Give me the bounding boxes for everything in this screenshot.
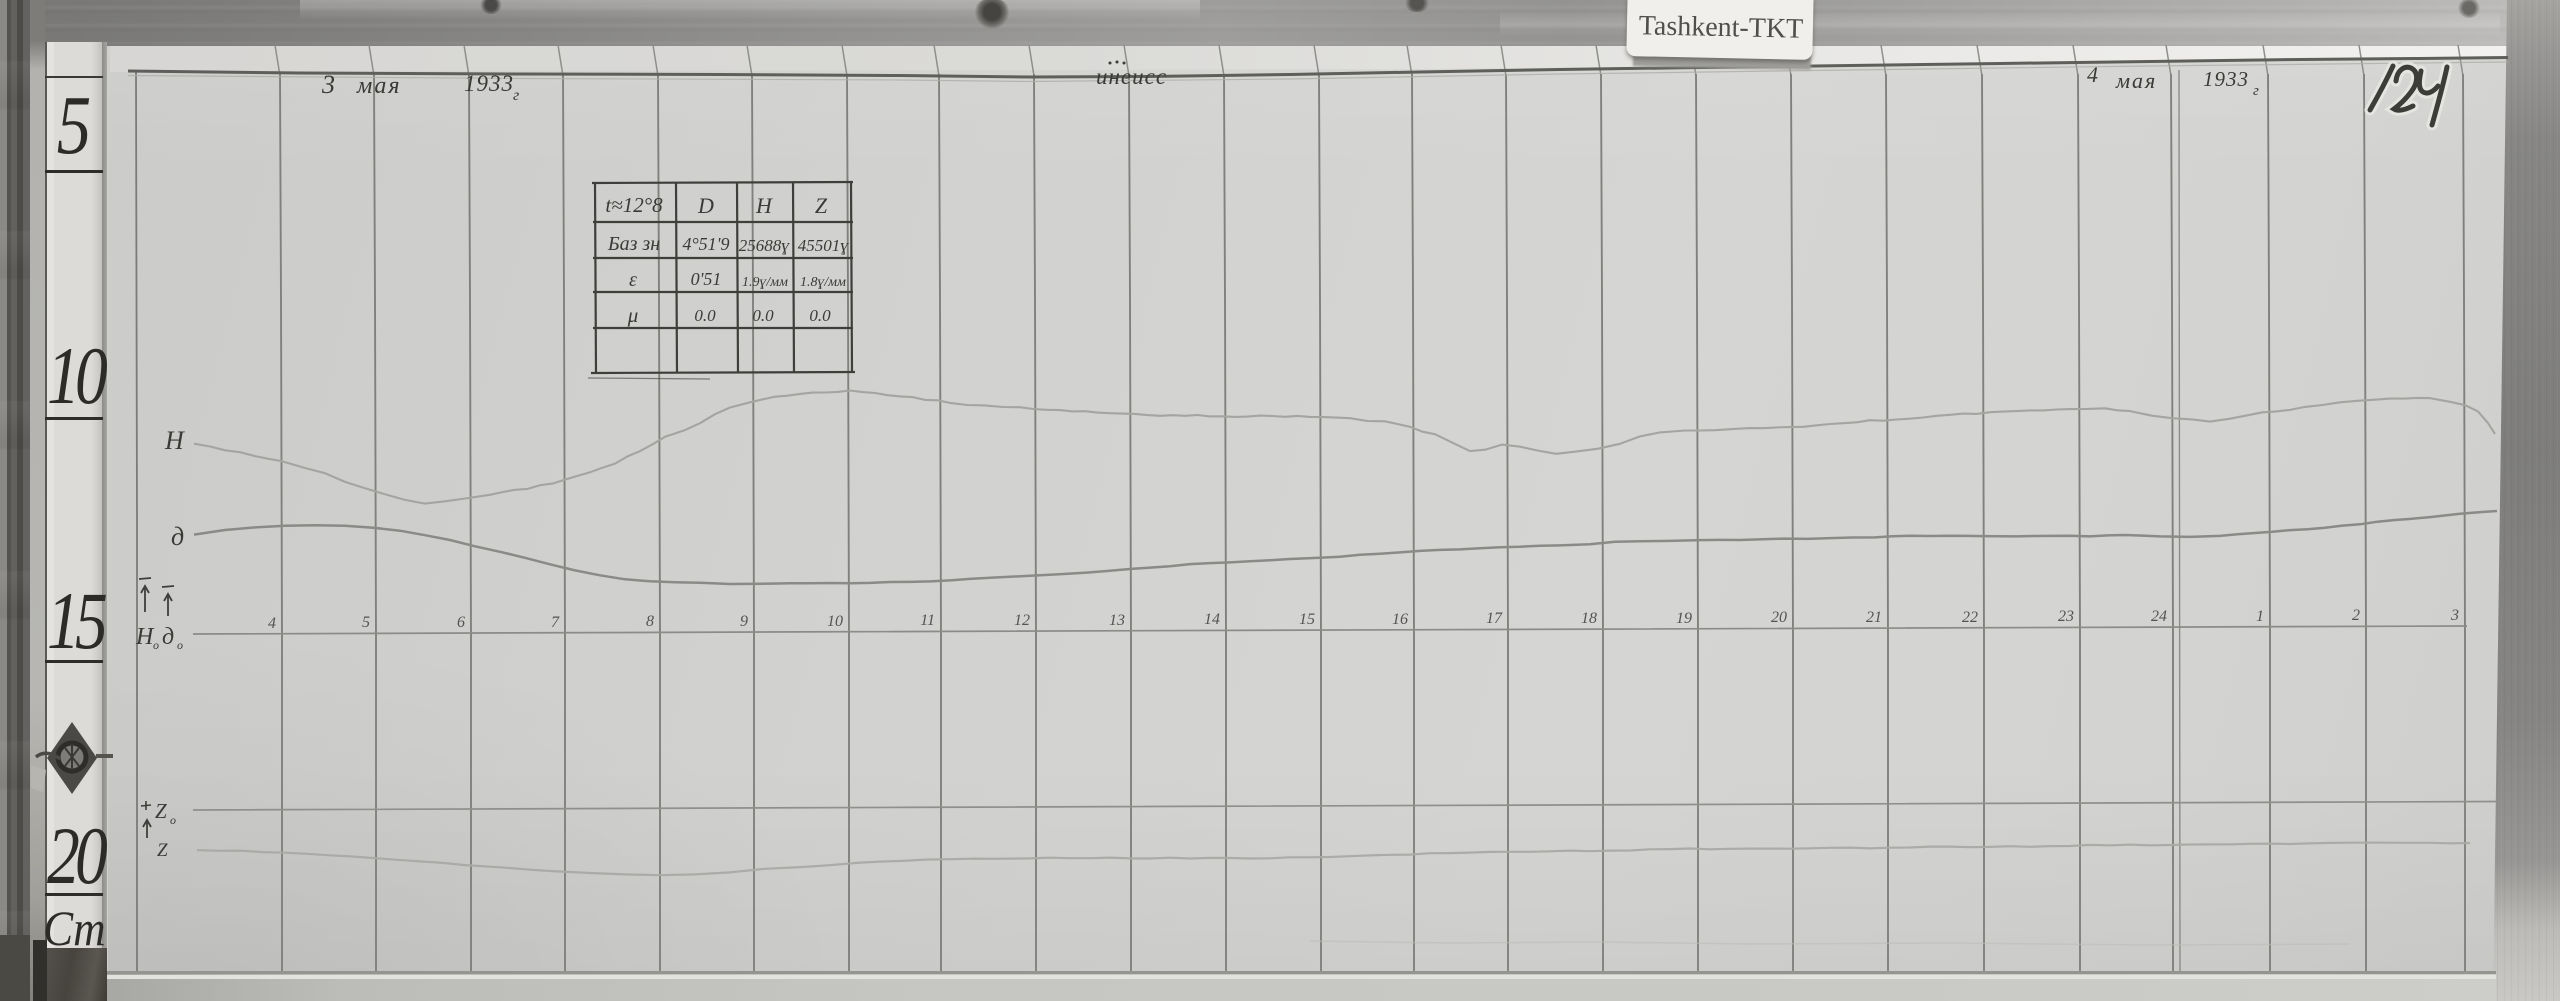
svg-text:Z: Z	[815, 193, 828, 218]
svg-text:17: 17	[1486, 610, 1503, 627]
svg-text:25688ɣ: 25688ɣ	[739, 236, 791, 255]
svg-text:1.8ɣ/мм: 1.8ɣ/мм	[800, 275, 846, 290]
svg-text:д: д	[162, 624, 174, 650]
svg-text:3: 3	[321, 70, 335, 99]
svg-text:0.0: 0.0	[694, 306, 716, 325]
svg-text:0.0: 0.0	[752, 306, 774, 325]
svg-text:12: 12	[1014, 612, 1030, 629]
svg-text:10: 10	[827, 613, 843, 630]
svg-text:9: 9	[740, 613, 748, 630]
svg-text:23: 23	[2058, 608, 2074, 625]
svg-text:20: 20	[1771, 609, 1787, 626]
svg-text:1: 1	[2256, 608, 2264, 625]
svg-text:6: 6	[457, 614, 465, 631]
svg-text:4°51'9: 4°51'9	[682, 234, 729, 254]
svg-text:18: 18	[1581, 610, 1597, 627]
svg-text:инеисс: инеисс	[1096, 64, 1167, 89]
svg-text:0'51: 0'51	[691, 269, 722, 289]
svg-text:Баз зн: Баз зн	[607, 233, 660, 255]
svg-text:19: 19	[1676, 610, 1692, 627]
svg-text:13: 13	[1109, 612, 1125, 629]
svg-text:8: 8	[646, 613, 654, 630]
svg-text:Z: Z	[155, 799, 167, 823]
svg-text:1933: 1933	[464, 71, 514, 96]
svg-text:0.0: 0.0	[809, 306, 831, 325]
svg-text:μ: μ	[627, 303, 639, 327]
svg-text:D: D	[697, 193, 714, 218]
svg-text:о: о	[170, 813, 176, 827]
svg-text:1933: 1933	[2203, 67, 2249, 91]
svg-text:д: д	[171, 522, 184, 551]
svg-text:15: 15	[1299, 611, 1315, 628]
svg-text:7: 7	[551, 614, 560, 631]
svg-text:14: 14	[1204, 611, 1220, 628]
svg-text:45501ɣ: 45501ɣ	[798, 236, 850, 255]
svg-text:3: 3	[2450, 607, 2459, 624]
svg-text:4: 4	[2087, 62, 2098, 87]
svg-text:5: 5	[362, 614, 370, 631]
svg-text:t≈12°8: t≈12°8	[605, 193, 663, 217]
svg-text:24: 24	[2151, 608, 2167, 625]
svg-text:4: 4	[268, 615, 276, 632]
svg-text:Н: Н	[164, 426, 185, 455]
svg-text:Z: Z	[157, 840, 168, 861]
svg-text:16: 16	[1392, 611, 1408, 628]
svg-text:мая: мая	[2115, 68, 2157, 93]
svg-text:г: г	[2253, 83, 2259, 99]
svg-text:H: H	[755, 193, 773, 218]
svg-text:Н: Н	[135, 624, 155, 650]
svg-text:мая: мая	[356, 73, 401, 99]
svg-text:22: 22	[1962, 609, 1978, 626]
svg-text:2: 2	[2352, 607, 2360, 624]
svg-text:1.9ɣ/мм: 1.9ɣ/мм	[742, 275, 788, 290]
svg-text:21: 21	[1866, 609, 1882, 626]
svg-text:о: о	[177, 638, 183, 652]
svg-text:ε: ε	[629, 269, 637, 291]
svg-text:г: г	[513, 87, 519, 104]
svg-text:11: 11	[920, 612, 935, 629]
svg-text:о: о	[153, 638, 159, 652]
